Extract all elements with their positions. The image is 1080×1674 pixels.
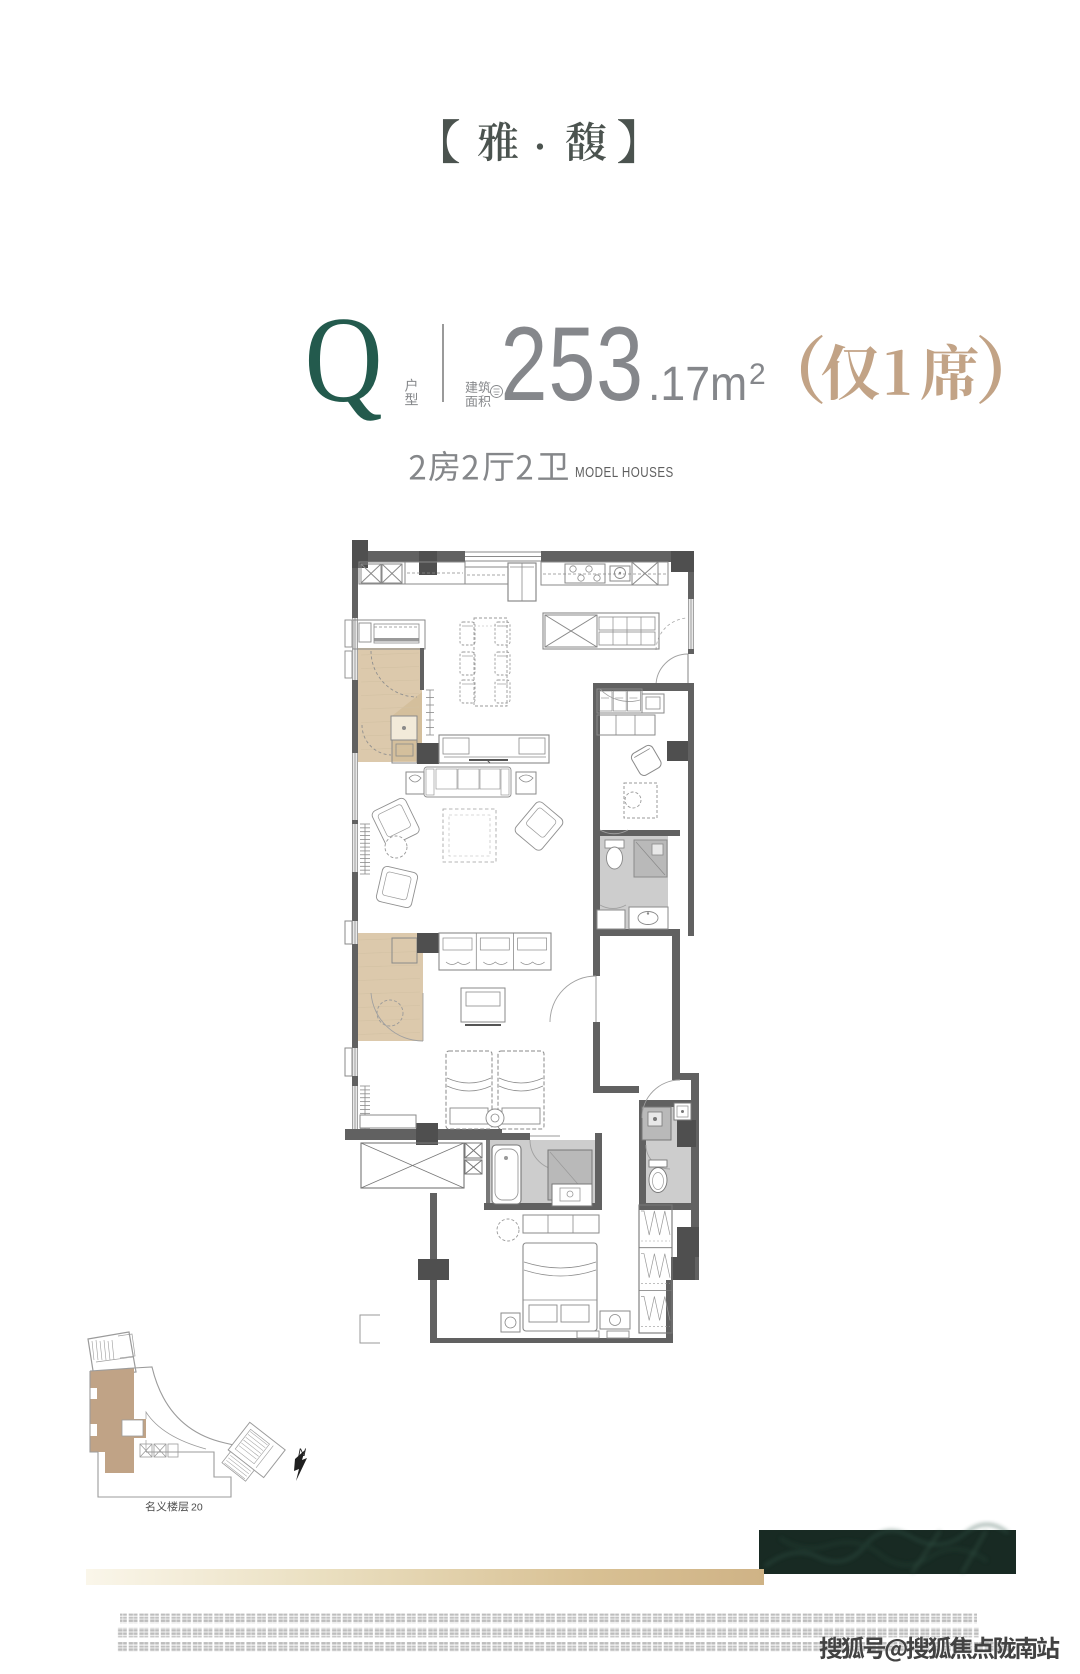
svg-text:N: N: [298, 1447, 306, 1459]
svg-text:253: 253: [501, 307, 644, 424]
svg-text:2: 2: [749, 358, 766, 391]
svg-text:Q: Q: [305, 293, 383, 429]
svg-text:MODEL HOUSES: MODEL HOUSES: [575, 464, 674, 481]
svg-text:.17m: .17m: [648, 357, 747, 411]
svg-text:20: 20: [191, 1502, 203, 1514]
